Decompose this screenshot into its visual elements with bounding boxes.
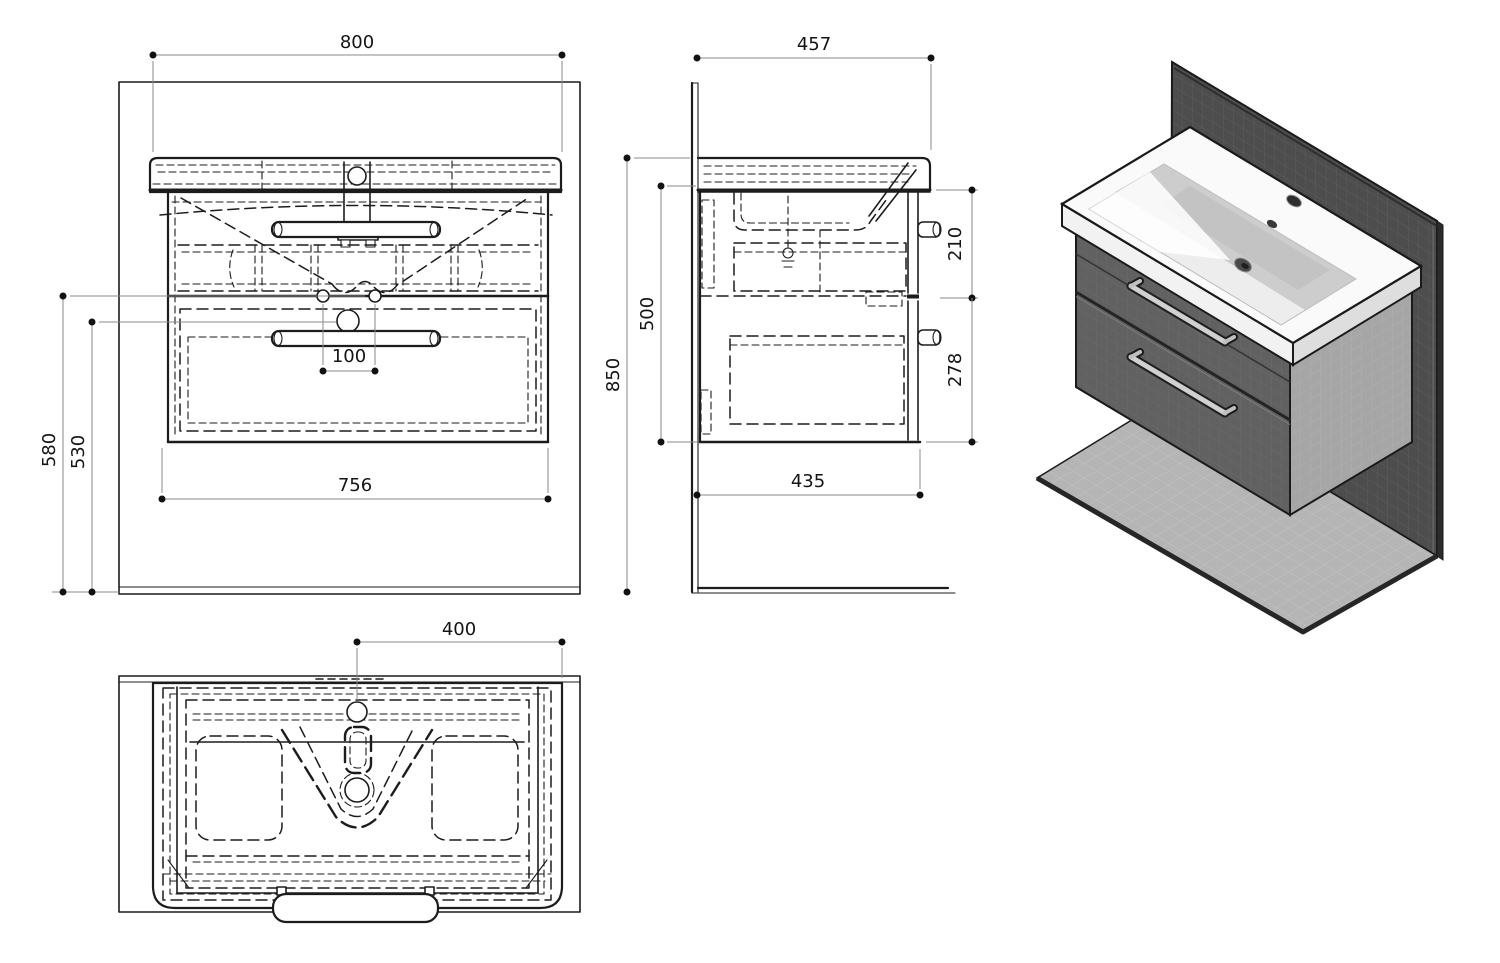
dim-cabinet-depth: 435 (791, 471, 825, 492)
mounting-hole-right (369, 290, 381, 302)
dim-cabinet-height: 500 (637, 297, 658, 331)
drawer-handles-side (918, 222, 941, 345)
trap-valve-symbol (783, 248, 793, 258)
cabinet-front (168, 192, 548, 442)
dim-faucet-offset: 400 (442, 619, 476, 640)
dim-basin-depth: 457 (797, 34, 831, 55)
side-view: 457 850 500 210 278 435 (603, 34, 978, 596)
washbasin-top (153, 683, 562, 922)
faucet-hole-top (347, 702, 367, 722)
top-drawer-handle-front (272, 222, 440, 237)
side-dimensions: 457 850 500 210 278 435 (603, 34, 978, 596)
drawing-sheet: 800 756 580 530 100 (0, 0, 1500, 963)
top-view: 400 (119, 619, 580, 922)
dim-height-mounting-holes: 580 (39, 433, 60, 467)
dim-height-drain: 530 (68, 435, 89, 469)
drain-hole-top (345, 778, 369, 802)
front-view: 800 756 580 530 100 (39, 32, 580, 596)
front-dimensions: 800 756 580 530 100 (39, 32, 566, 596)
isometric-view (1037, 62, 1443, 632)
dim-bottom-drawer: 278 (945, 353, 966, 387)
drawer-gap (907, 295, 919, 299)
cabinet-side (698, 192, 941, 442)
bottom-drawer-handle-front (272, 331, 440, 346)
dim-overall-height: 850 (603, 358, 624, 392)
technical-drawing-canvas: 800 756 580 530 100 (0, 0, 1500, 963)
drain-hole-front (337, 310, 359, 332)
dim-sink-width: 800 (340, 32, 374, 53)
dim-top-drawer: 210 (945, 227, 966, 261)
washbasin-side (698, 158, 930, 294)
dim-cabinet-width: 756 (338, 475, 372, 496)
basin-back-curve (160, 206, 552, 216)
dim-hole-spacing: 100 (332, 346, 366, 367)
